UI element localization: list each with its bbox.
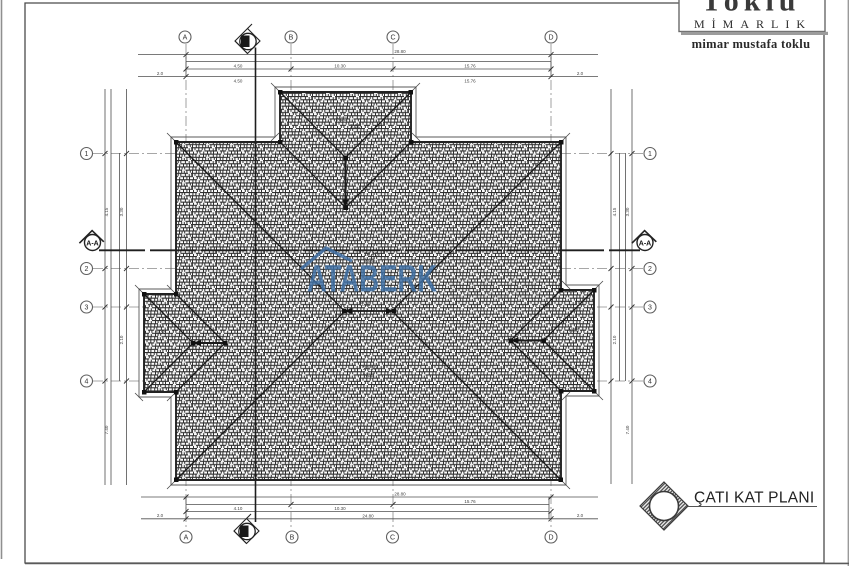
svg-text:3.30: 3.30 xyxy=(360,302,371,308)
svg-text:2.0: 2.0 xyxy=(157,513,164,518)
svg-text:1: 1 xyxy=(648,151,652,158)
svg-text:4.15: 4.15 xyxy=(612,207,617,216)
svg-text:24.90: 24.90 xyxy=(363,366,377,372)
svg-text:ÇATI KAT PLANI: ÇATI KAT PLANI xyxy=(694,490,814,507)
svg-text:%33: %33 xyxy=(336,117,347,123)
svg-text:4.15: 4.15 xyxy=(104,207,109,216)
svg-text:A-A: A-A xyxy=(639,241,651,248)
svg-text:3.30: 3.30 xyxy=(350,124,361,130)
svg-text:A: A xyxy=(184,535,189,542)
svg-text:Toklu: Toklu xyxy=(702,0,801,18)
svg-text:3.30: 3.30 xyxy=(625,207,630,216)
svg-text:4.50: 4.50 xyxy=(234,79,243,84)
svg-text:3: 3 xyxy=(648,305,652,312)
svg-text:4: 4 xyxy=(85,379,89,386)
svg-text:1: 1 xyxy=(85,151,89,158)
svg-text:28.80: 28.80 xyxy=(394,49,406,54)
svg-text:A-A: A-A xyxy=(86,241,98,248)
svg-text:2.0: 2.0 xyxy=(157,71,164,76)
svg-text:7.40: 7.40 xyxy=(104,425,109,434)
svg-text:EMLAK: EMLAK xyxy=(448,273,543,306)
svg-text:C: C xyxy=(390,35,395,42)
svg-text:MİMARLIK: MİMARLIK xyxy=(694,17,812,31)
svg-text:4.50: 4.50 xyxy=(234,64,243,69)
svg-text:3.30: 3.30 xyxy=(119,207,124,216)
svg-text:4: 4 xyxy=(648,379,652,386)
svg-text:%33: %33 xyxy=(568,328,579,334)
svg-text:3: 3 xyxy=(85,305,89,312)
svg-text:2.0: 2.0 xyxy=(577,513,584,518)
svg-text:7.40: 7.40 xyxy=(625,425,630,434)
svg-text:%33: %33 xyxy=(363,373,374,379)
svg-text:A: A xyxy=(183,35,188,42)
svg-text:B: B xyxy=(289,35,294,42)
svg-text:10.30: 10.30 xyxy=(334,506,346,511)
svg-text:2: 2 xyxy=(85,266,89,273)
svg-text:15.76: 15.76 xyxy=(464,79,476,84)
svg-text:B: B xyxy=(290,535,295,542)
svg-text:10.30: 10.30 xyxy=(334,64,346,69)
svg-text:15.76: 15.76 xyxy=(464,64,476,69)
svg-text:mimar mustafa toklu: mimar mustafa toklu xyxy=(692,37,811,51)
svg-text:2.10: 2.10 xyxy=(612,335,617,344)
svg-text:2.10: 2.10 xyxy=(119,335,124,344)
svg-text:2.0: 2.0 xyxy=(577,71,584,76)
svg-text:2: 2 xyxy=(648,266,652,273)
svg-text:%33: %33 xyxy=(364,258,375,264)
svg-text:D: D xyxy=(548,535,553,542)
svg-text:C: C xyxy=(390,535,395,542)
svg-text:24.80: 24.80 xyxy=(362,513,374,518)
svg-text:15.76: 15.76 xyxy=(464,499,476,504)
svg-text:ATABERK: ATABERK xyxy=(307,259,437,301)
svg-text:%33: %33 xyxy=(155,330,166,336)
svg-text:4.10: 4.10 xyxy=(234,506,243,511)
svg-text:28.80: 28.80 xyxy=(394,492,406,497)
svg-text:D: D xyxy=(548,35,553,42)
